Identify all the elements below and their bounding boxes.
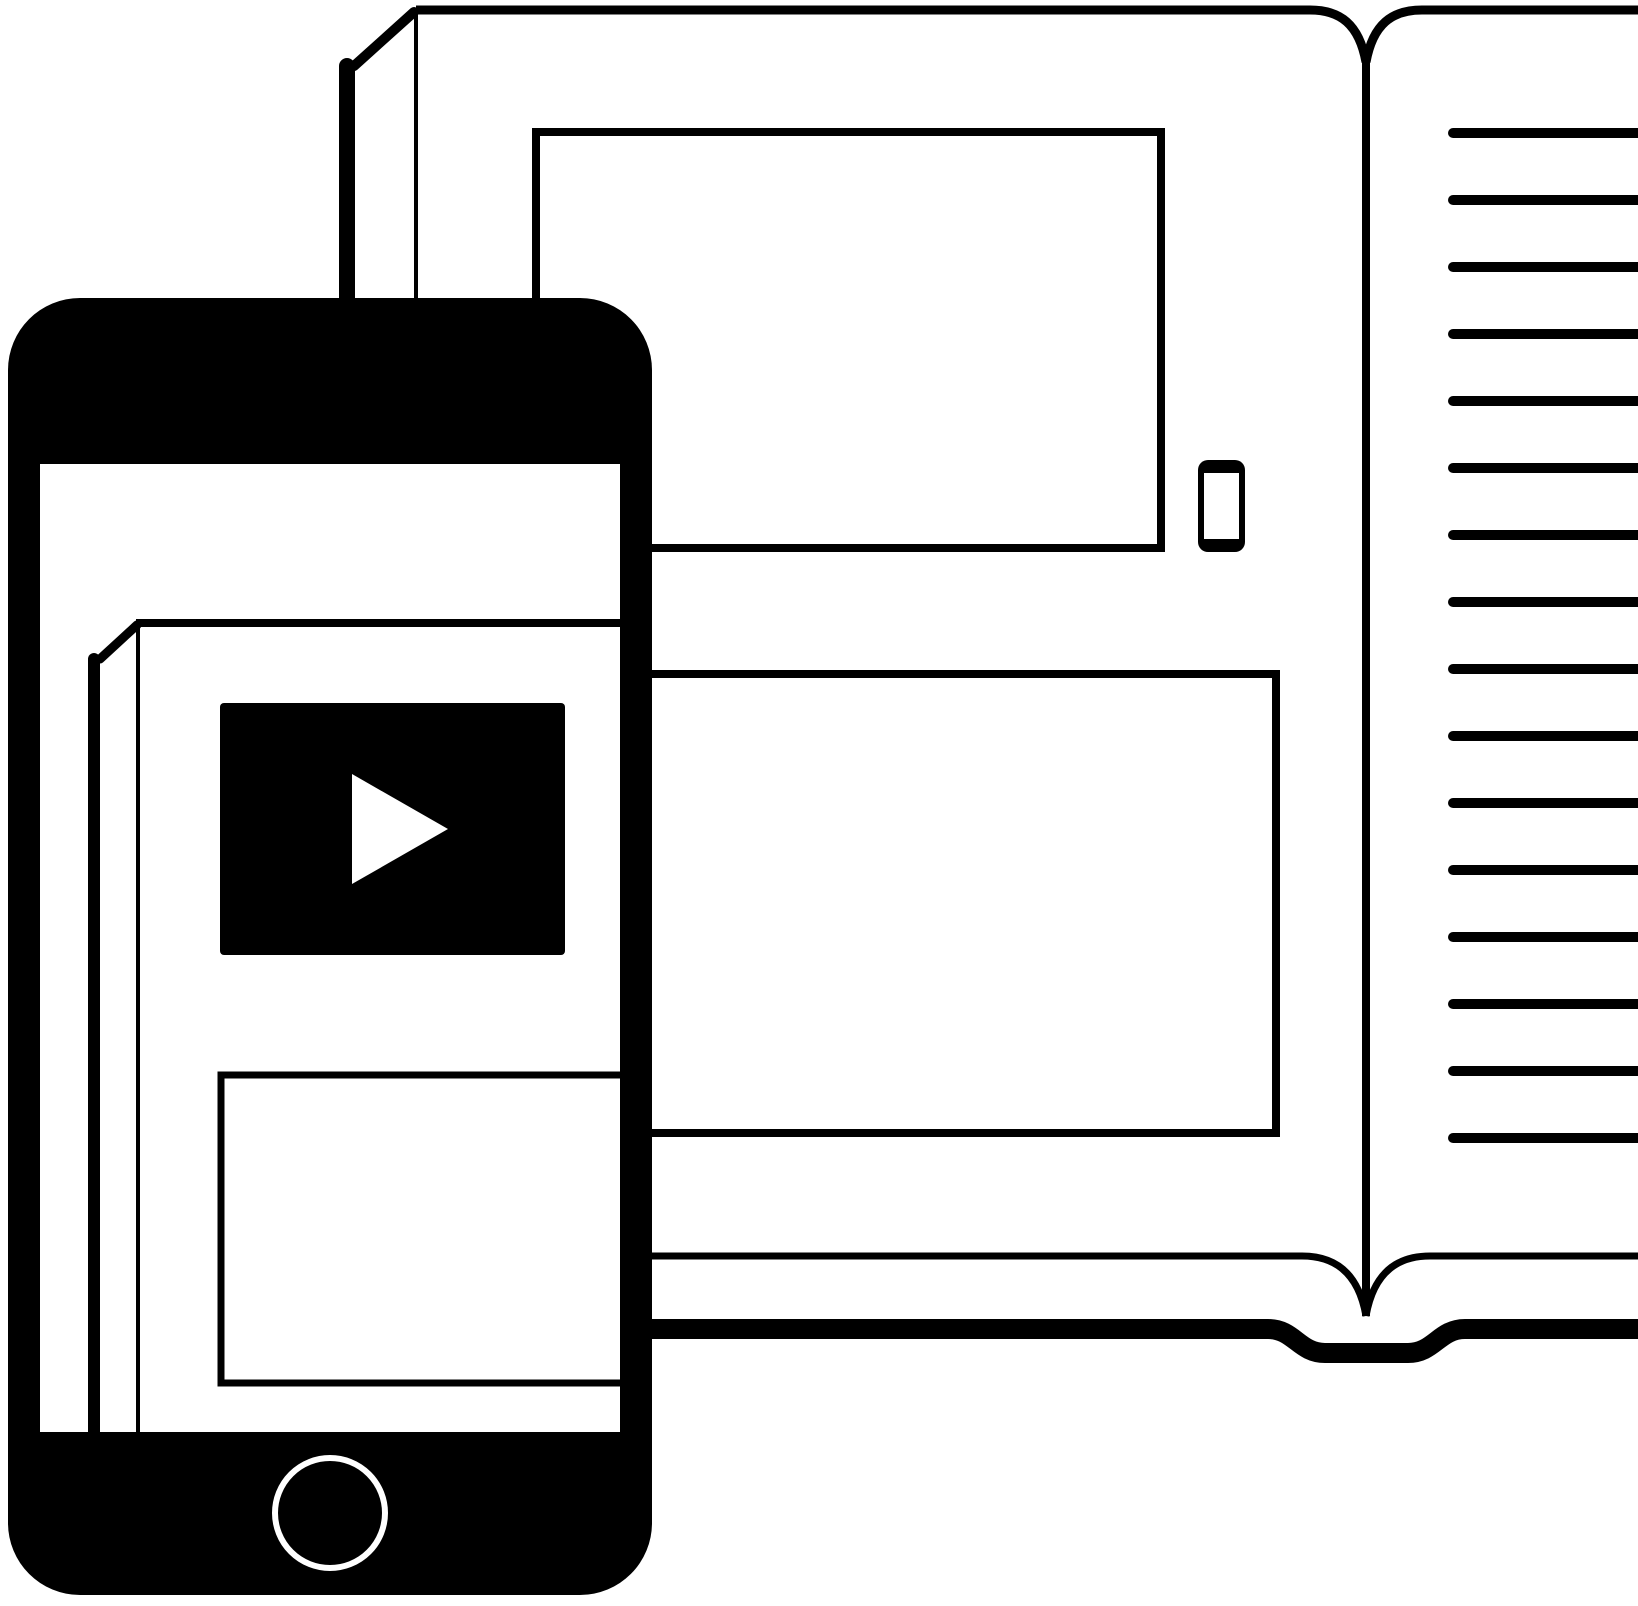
book-right-page-top-edge (1366, 10, 1638, 62)
illustration-canvas (0, 0, 1638, 1606)
mobile-learning-illustration (0, 0, 1638, 1606)
book-left-page-top-edge (416, 10, 1366, 62)
book-back-cover (600, 1329, 1638, 1353)
phone-glyph-screen (1204, 473, 1239, 539)
right-page-bottom-edge (1366, 1256, 1638, 1316)
phone-glyph-icon (1198, 460, 1245, 552)
page-stack-fold-diagonal (354, 12, 414, 66)
content-card (221, 1075, 641, 1383)
left-page-bottom-edge (600, 1256, 1366, 1316)
smartphone (8, 298, 652, 1595)
ruled-lines (1453, 133, 1638, 1138)
